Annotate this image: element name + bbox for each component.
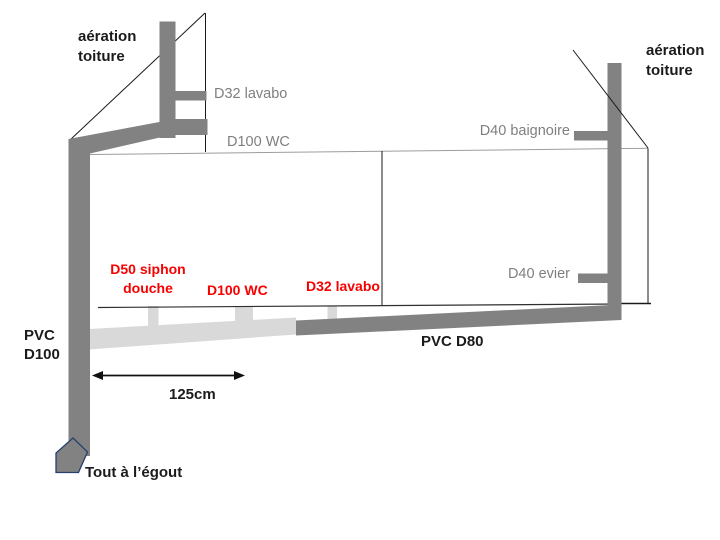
label-aeration-toiture-left: aération toiture (78, 27, 136, 67)
label-pvc-d100: PVC D100 (24, 326, 60, 364)
label-d32-lavabo-vent: D32 lavabo (214, 85, 287, 103)
label-d40-evier: D40 evier (440, 265, 570, 283)
label-tout-a-legout: Tout à l’égout (85, 463, 182, 483)
pipe-pvc-d100-horizontal (89, 318, 296, 350)
plumbing-diagram: aération toiture aération toiture D32 la… (0, 0, 720, 540)
floor-line (98, 304, 620, 308)
pipe-pvc-d80 (296, 305, 622, 336)
label-d32-lavabo-branch: D32 lavabo (306, 277, 380, 296)
pipe-branch-d100-wc (160, 119, 208, 135)
pipe-stub-d40-baignoire (574, 131, 608, 141)
label-d40-baignoire: D40 baignoire (440, 122, 570, 140)
pipe-stub-d32-lavabo (328, 306, 338, 320)
label-pvc-d80: PVC D80 (421, 332, 484, 352)
dimension-arrowhead-right (234, 371, 245, 380)
label-d100-wc-branch: D100 WC (207, 281, 268, 300)
dimension-arrowhead-left (92, 371, 103, 380)
ceiling-line (90, 148, 648, 154)
pipe-stub-d40-evier (578, 274, 608, 284)
pipe-stub-d50-siphon-douche (148, 306, 159, 328)
pipe-vent-stack-right (608, 63, 622, 318)
label-d50-siphon-douche: D50 siphon douche (105, 260, 191, 298)
pipe-stub-d32-lavabo-vent (176, 91, 207, 101)
label-d100-wc-vent: D100 WC (227, 133, 290, 151)
label-125cm: 125cm (169, 385, 216, 405)
label-aeration-toiture-right: aération toiture (646, 41, 704, 81)
